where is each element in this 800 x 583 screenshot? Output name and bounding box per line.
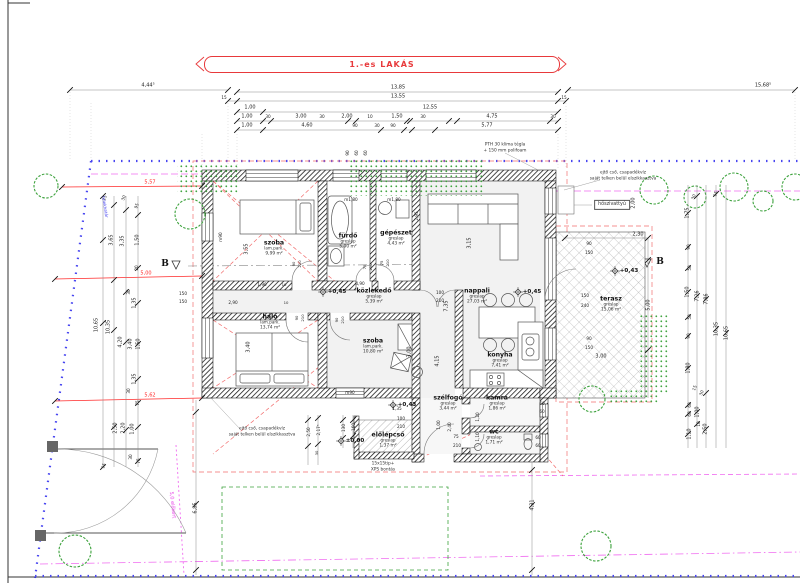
window bbox=[246, 170, 298, 181]
section-arrow-left bbox=[172, 261, 180, 269]
window bbox=[545, 188, 556, 214]
lawn-area bbox=[222, 487, 448, 570]
sofa bbox=[428, 194, 518, 224]
window bbox=[540, 434, 548, 447]
apartment-1-title: 1.-es LAKÁS bbox=[349, 60, 414, 69]
entry-steps bbox=[358, 420, 412, 454]
window bbox=[202, 213, 213, 241]
apartment-1-banner: 1.-es LAKÁS bbox=[204, 56, 560, 73]
desk bbox=[391, 352, 412, 371]
window bbox=[540, 404, 548, 417]
gate bbox=[35, 441, 186, 541]
terrace bbox=[556, 232, 645, 398]
boiler bbox=[379, 202, 392, 215]
floorplan-canvas: 1.-es LAKÁS 4,44⁵13,8515,68⁵1513,55151,0… bbox=[0, 0, 800, 583]
window bbox=[202, 318, 213, 358]
bed-single bbox=[240, 200, 314, 234]
red-dimension-lines bbox=[55, 186, 202, 401]
window bbox=[336, 388, 364, 398]
window bbox=[545, 328, 556, 360]
floor-plan-drawing bbox=[0, 0, 800, 583]
heat-pump-pad bbox=[558, 186, 574, 214]
